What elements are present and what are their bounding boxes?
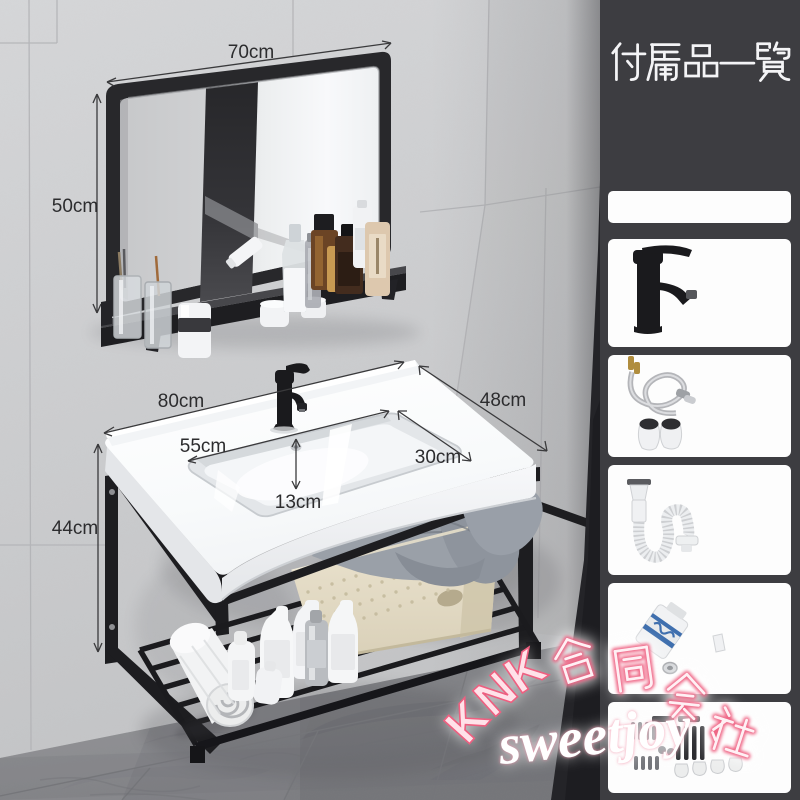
svg-text:30cm: 30cm (415, 447, 461, 468)
svg-text:50cm: 50cm (52, 196, 98, 217)
svg-text:44cm: 44cm (52, 518, 98, 539)
svg-text:55cm: 55cm (180, 436, 226, 457)
svg-text:70cm: 70cm (228, 42, 274, 63)
svg-text:13cm: 13cm (275, 492, 321, 513)
svg-text:48cm: 48cm (480, 390, 526, 411)
svg-text:80cm: 80cm (158, 391, 204, 412)
